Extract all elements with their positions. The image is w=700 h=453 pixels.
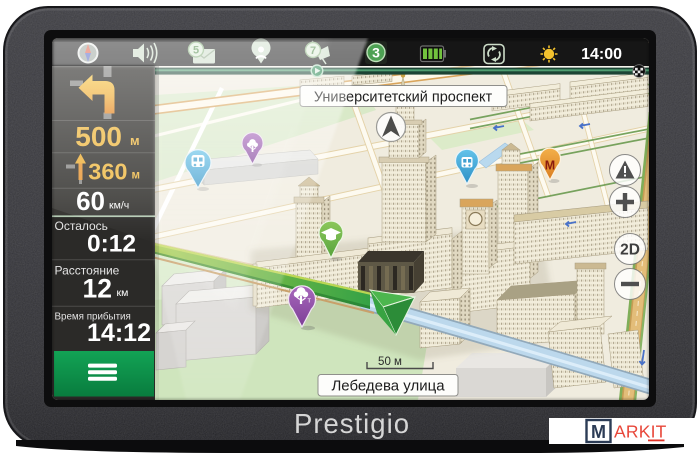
svg-text:14:12: 14:12 [87, 319, 151, 347]
svg-text:12: 12 [83, 274, 112, 304]
svg-text:Prestigio: Prestigio [294, 408, 410, 439]
svg-text:50 м: 50 м [378, 356, 402, 368]
svg-text:М: М [545, 159, 555, 173]
svg-text:2D: 2D [620, 242, 640, 259]
svg-text:км: км [117, 287, 129, 299]
svg-text:14:00: 14:00 [581, 46, 622, 63]
svg-text:3: 3 [372, 45, 380, 61]
svg-text:Лебедева улица: Лебедева улица [331, 378, 445, 395]
svg-text:т: т [308, 296, 312, 305]
svg-text:0:12: 0:12 [87, 231, 136, 258]
svg-text:M: M [591, 422, 606, 442]
svg-text:ARKIT: ARKIT [614, 422, 667, 442]
